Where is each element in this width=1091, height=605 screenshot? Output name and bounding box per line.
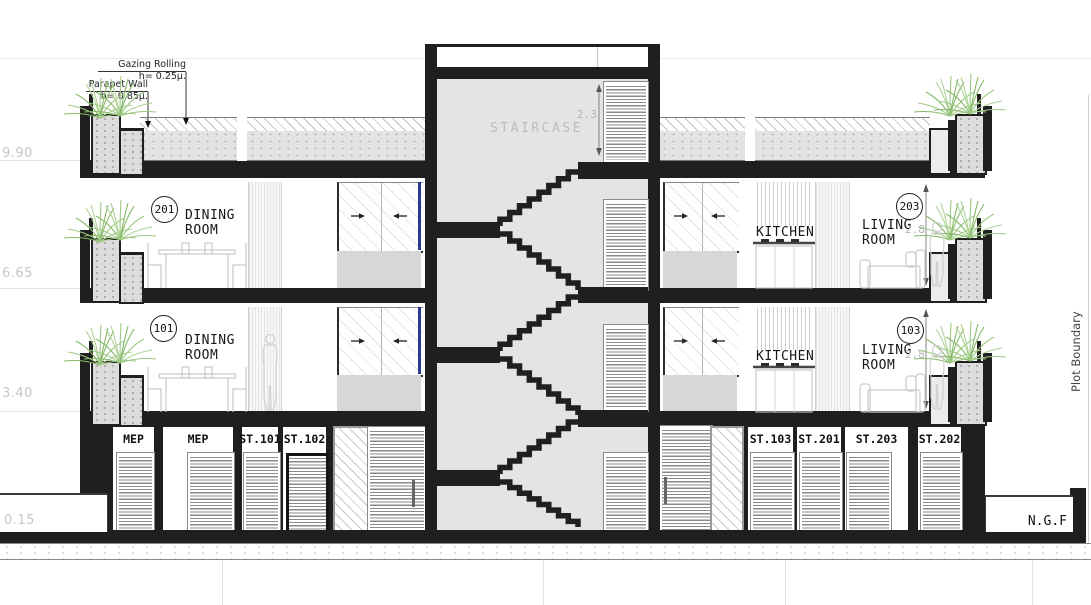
stair-louver-window [604,325,648,411]
level-label-first: 3.40 [2,386,33,401]
balustrade-spandrel [337,375,421,411]
datum-line-3-40 [0,411,80,412]
unit-number: 101 [154,322,174,335]
louver-door [847,453,891,532]
glass-panel [339,308,382,375]
balcony-edge-wall [983,230,992,299]
height-dimension-1f: 2.8 [905,348,925,361]
room-label-kitchen-1f: KITCHEN [756,350,814,365]
unit-badge-201: 201 [151,196,178,223]
height-dimension-2f: 2.8 [905,223,925,236]
planter-box [119,128,144,176]
sliding-glass-door [663,307,739,377]
plot-boundary-label: Plot Boundary [1069,300,1083,392]
stair-tower-wall-left [425,44,437,530]
sliding-glass-door [337,307,423,377]
level-label-ground: 0.15 [4,513,35,528]
room-label-kitchen-2f: KITCHEN [756,226,814,241]
planter-box [91,238,121,303]
level-label-roof: 9.90 [2,146,33,161]
glass-panel [665,308,703,375]
unit-number: 201 [155,203,175,216]
room-label-dining-2f: DINING ROOM [185,209,247,238]
wall-texture-band [248,182,282,288]
planter-post [977,341,981,363]
planter-divider [948,120,955,171]
glass-frame-accent [418,307,421,374]
wall-texture-band [815,307,850,411]
planter-post [977,94,981,116]
ground-edge-wall-left [80,425,113,493]
planter-post [89,218,93,240]
balustrade-spandrel [663,375,737,411]
unit-badge-101: 101 [150,315,177,342]
planter-box [91,114,121,175]
unit-badge-203: 203 [896,193,923,220]
planter-box [91,361,121,426]
parapet-annotation-value: h= 0.85µ. [86,92,148,103]
garage-shutter [368,427,426,534]
parapet-joint [745,116,755,161]
louver-door [921,453,962,532]
unit-badge-103: 103 [897,317,924,344]
planter-post [89,341,93,363]
kitchen-cabinet-band [757,307,812,350]
planter-divider [948,367,955,422]
louver-door [188,453,234,532]
stair-tower-parapet [437,47,648,67]
wall-texture-band [815,182,850,288]
parapet-joint [237,116,247,161]
glass-panel [339,183,382,251]
planter-post [977,218,981,240]
stair-louver-door [604,453,648,532]
parapet-joint-line [597,47,598,67]
level-label-second: 6.65 [2,266,33,281]
plot-boundary-line [1088,95,1089,543]
wall-texture-band [248,307,282,411]
glazed-panel [710,426,744,534]
staircase-label: STAIRCASE [490,121,583,136]
balustrade-spandrel [337,251,421,288]
balcony-edge-wall [80,353,90,422]
building-section-canvas: 9.90 6.65 3.40 201 DINING ROOM KITCHEN 2… [0,0,1091,605]
louver-door [244,453,280,532]
roof-parapet-wall-right [660,131,930,161]
ground-hardscape-strip [0,543,1091,560]
staircase-height-dimension: 2.3 [577,108,597,121]
sliding-glass-door [663,182,739,253]
louver-door [117,453,154,532]
balustrade-spandrel [663,251,737,288]
shutter-handle [664,477,667,504]
ground-slab [0,530,1086,543]
room-label-dining-1f: DINING ROOM [185,334,247,363]
stair-tower-roof-slab [437,67,648,79]
ngf-step: N.G.F [985,495,1073,532]
glass-panel [665,183,703,251]
planter-divider [948,244,955,299]
louver-door [800,453,842,532]
planter-box [119,375,144,427]
stair-louver-window [604,82,648,162]
stair-tower-wall-right [648,44,660,530]
glass-frame-accent [418,182,421,250]
garage-shutter [660,426,712,534]
unit-number: 203 [900,200,920,213]
planter-box [119,252,144,304]
sliding-glass-door [337,182,423,253]
balcony-edge-wall [80,230,90,299]
roof-parapet-wall-left [140,131,425,161]
unit-number: 103 [901,324,921,337]
louver-door [286,453,329,534]
ngf-label: N.G.F [1028,514,1067,529]
balcony-edge-wall [983,353,992,422]
balcony-edge-wall [983,106,992,171]
louver-door [751,453,794,532]
kitchen-cabinet-band [757,182,812,226]
shutter-handle [412,480,415,507]
datum-line-6-65 [0,288,80,289]
stair-louver-window [604,200,648,290]
glazed-panel [333,426,370,534]
